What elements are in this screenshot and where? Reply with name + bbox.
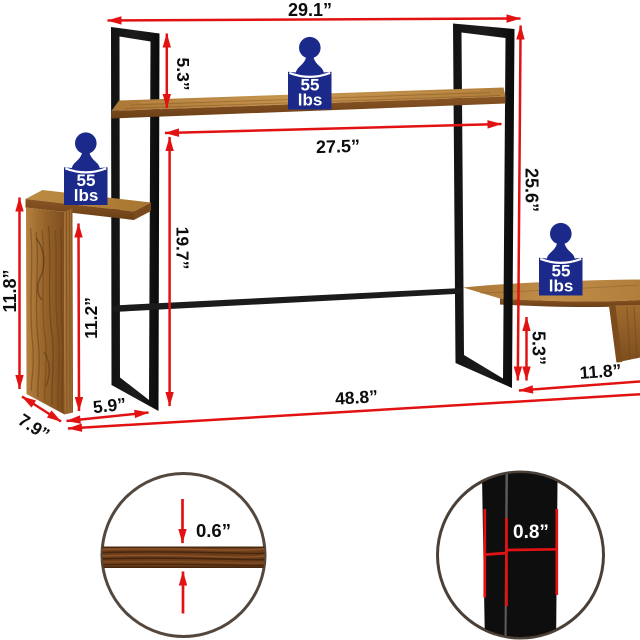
svg-text:5.3”: 5.3” (173, 57, 193, 90)
svg-text:19.7”: 19.7” (173, 227, 193, 270)
svg-text:5.9”: 5.9” (92, 394, 127, 417)
svg-text:lbs: lbs (298, 91, 323, 110)
svg-text:48.8”: 48.8” (334, 386, 378, 409)
svg-text:5.3”: 5.3” (529, 331, 549, 365)
svg-text:lbs: lbs (74, 186, 99, 205)
svg-text:0.6”: 0.6” (196, 520, 231, 541)
svg-text:0.8”: 0.8” (513, 522, 549, 543)
svg-text:11.8”: 11.8” (0, 269, 20, 312)
svg-text:11.2”: 11.2” (81, 297, 101, 339)
svg-text:29.1”: 29.1” (288, 0, 332, 20)
svg-text:25.6”: 25.6” (522, 168, 542, 212)
svg-text:lbs: lbs (549, 277, 574, 296)
svg-text:11.8”: 11.8” (579, 360, 622, 383)
svg-text:27.5”: 27.5” (316, 136, 361, 157)
